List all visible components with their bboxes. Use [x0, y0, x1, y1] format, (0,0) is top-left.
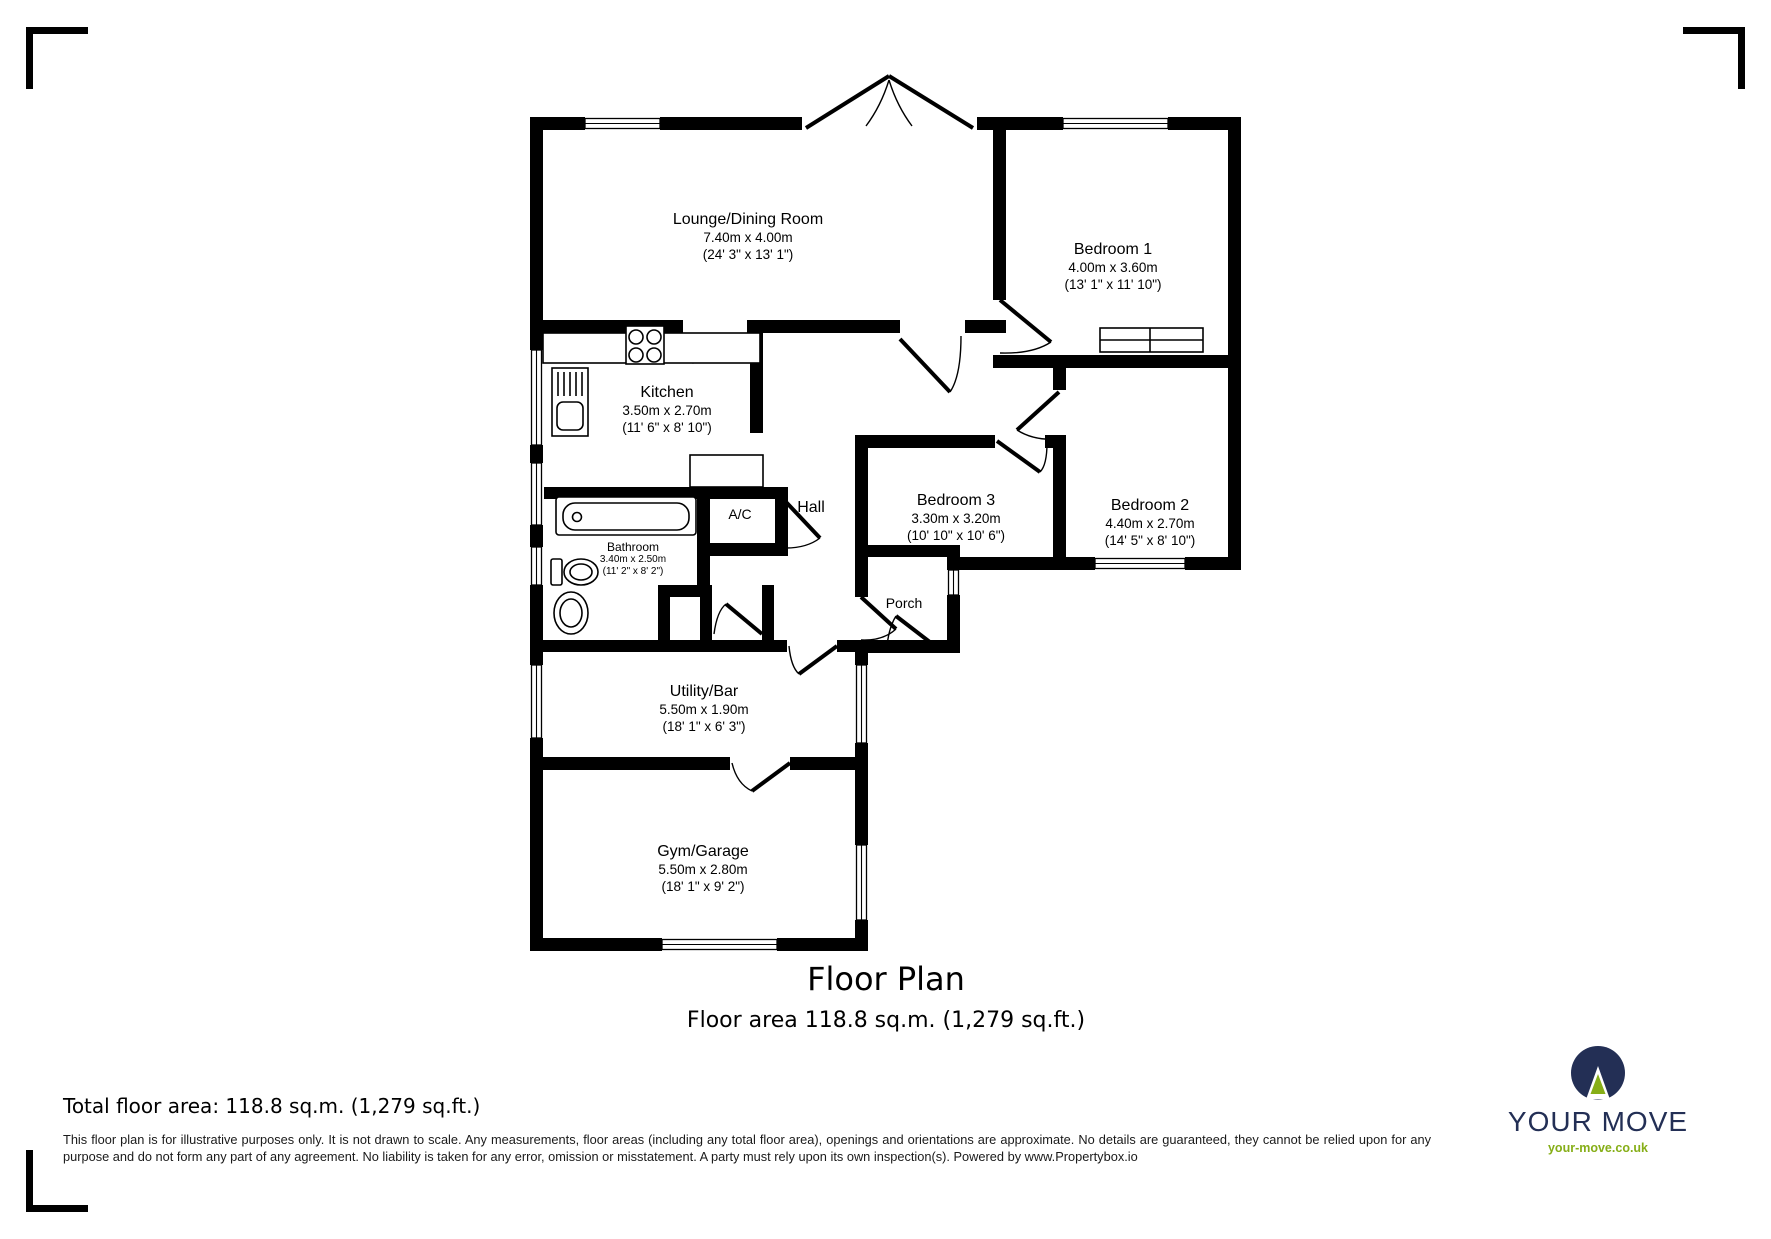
- fixtures: [543, 326, 1203, 634]
- brand-logo: YOUR MOVE your-move.co.uk: [1497, 1044, 1699, 1155]
- page-title: Floor Plan: [807, 960, 965, 998]
- window-bedroom1: [1063, 116, 1168, 131]
- window-bedroom2: [1095, 556, 1185, 571]
- brand-name: YOUR MOVE: [1497, 1106, 1699, 1138]
- brand-url: your-move.co.uk: [1497, 1141, 1699, 1155]
- window-gym-bottom: [662, 937, 777, 952]
- door-bedroom1: [1000, 300, 1051, 353]
- basin-icon: [554, 592, 588, 634]
- floor-area-subtitle: Floor area 118.8 sq.m. (1,279 sq.ft.): [687, 1008, 1085, 1033]
- room-label-bathroom: Bathroom 3.40m x 2.50m (11' 2" x 8' 2"): [600, 540, 666, 578]
- room-label-lounge: Lounge/Dining Room 7.40m x 4.00m (24' 3"…: [673, 210, 823, 263]
- brand-mark-icon: [1569, 1044, 1627, 1102]
- wardrobe-icon: [1100, 328, 1203, 352]
- window-porch: [946, 570, 961, 595]
- crop-mark-top-left: [26, 27, 88, 89]
- window-utility-right: [854, 665, 869, 743]
- total-floor-area: Total floor area: 118.8 sq.m. (1,279 sq.…: [63, 1094, 480, 1118]
- room-label-bedroom2: Bedroom 2 4.40m x 2.70m (14' 5" x 8' 10"…: [1105, 496, 1196, 549]
- door-lounge-hall: [900, 336, 961, 392]
- door-bathroom: [714, 604, 762, 634]
- door-utility-gym: [732, 763, 790, 791]
- hob-icon: [626, 326, 664, 364]
- window-bathroom-a: [529, 463, 544, 525]
- room-label-hall: Hall: [797, 498, 825, 517]
- window-utility-left: [529, 665, 544, 738]
- room-label-ac: A/C: [728, 506, 751, 523]
- room-label-porch: Porch: [886, 595, 923, 612]
- room-label-utility: Utility/Bar 5.50m x 1.90m (18' 1" x 6' 3…: [659, 682, 748, 735]
- window-gym-right: [854, 845, 869, 920]
- window-bathroom-b: [529, 547, 544, 585]
- crop-mark-top-right: [1683, 27, 1745, 89]
- door-bedroom2: [1017, 392, 1059, 439]
- room-label-gym: Gym/Garage 5.50m x 2.80m (18' 1" x 9' 2"…: [657, 842, 749, 895]
- room-label-kitchen: Kitchen 3.50m x 2.70m (11' 6" x 8' 10"): [622, 383, 712, 436]
- toilet-icon: [551, 559, 598, 585]
- window-lounge: [585, 116, 660, 131]
- room-label-bedroom1: Bedroom 1 4.00m x 3.60m (13' 1" x 11' 10…: [1064, 240, 1161, 293]
- kitchen-sink-icon: [552, 368, 588, 436]
- door-bedroom3: [997, 441, 1047, 472]
- door-hall-utility: [789, 646, 837, 674]
- room-label-bedroom3: Bedroom 3 3.30m x 3.20m (10' 10" x 10' 6…: [907, 491, 1005, 544]
- bathtub-icon: [556, 497, 696, 535]
- french-doors-icon: [802, 76, 977, 131]
- window-kitchen: [529, 350, 544, 445]
- floor-plan-page: Lounge/Dining Room 7.40m x 4.00m (24' 3"…: [0, 0, 1771, 1239]
- disclaimer-text: This floor plan is for illustrative purp…: [63, 1132, 1431, 1165]
